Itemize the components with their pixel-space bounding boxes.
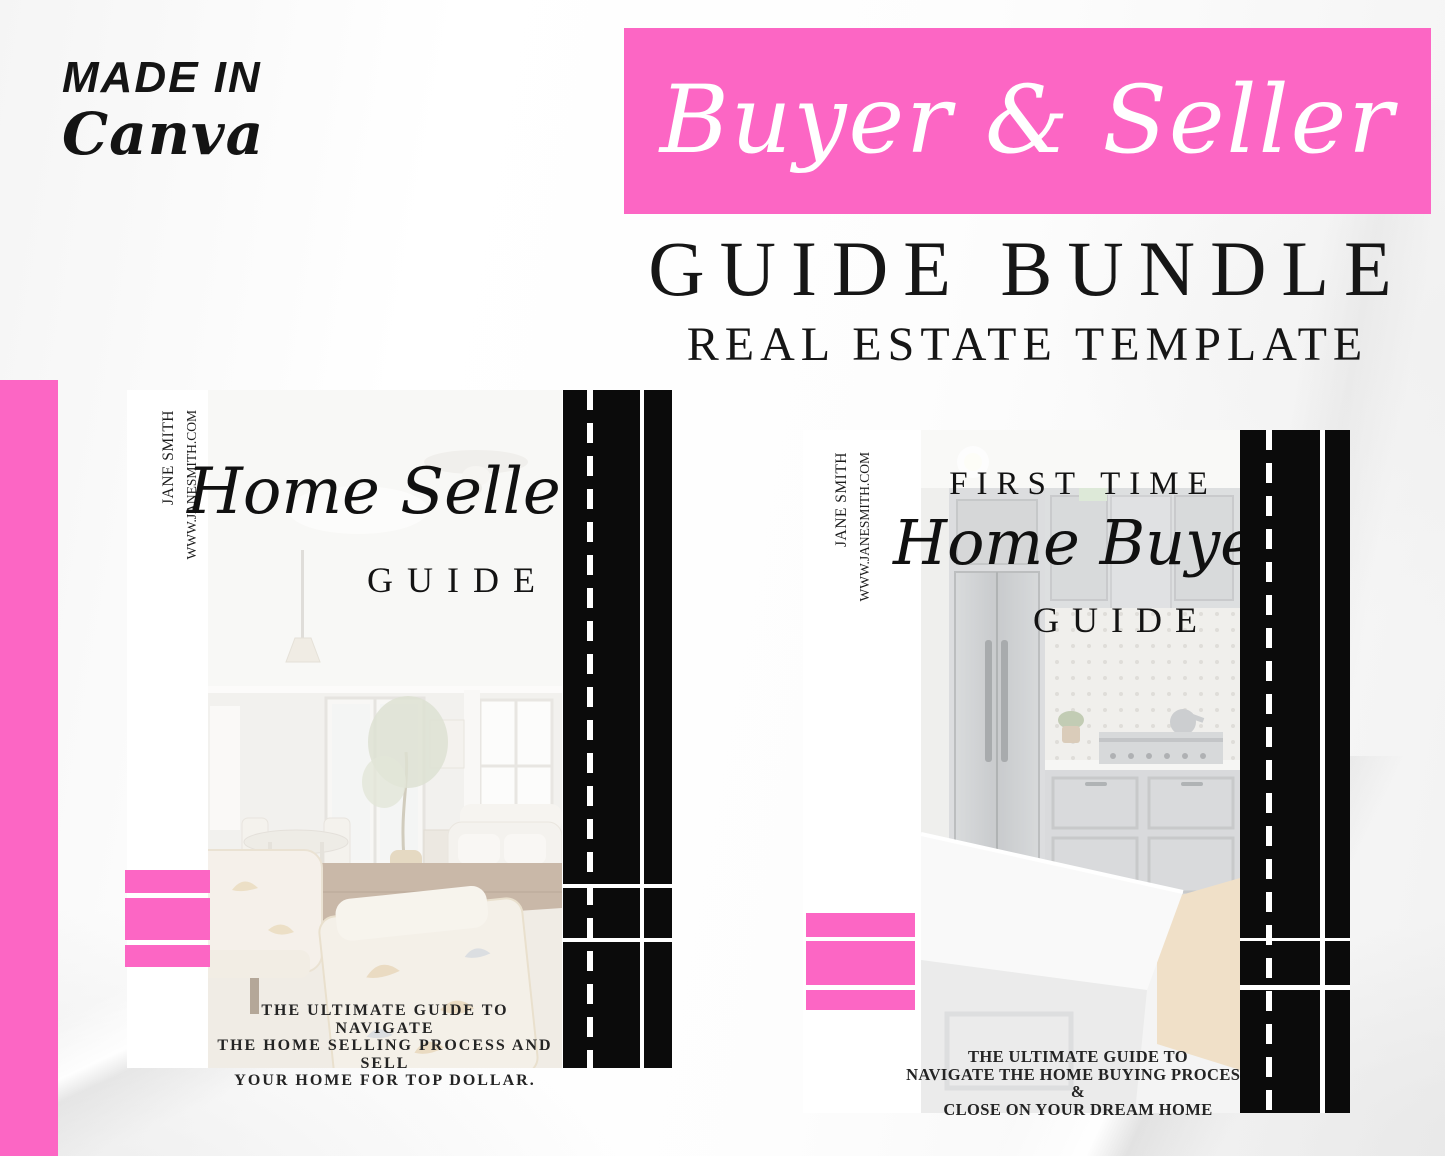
pink-stripe [806,913,915,937]
made-in-canva-badge: MADE IN Canva [62,55,264,163]
agent-name-vertical: JANE SMITH [831,452,853,547]
cover-tagline-line: YOUR HOME FOR TOP DOLLAR. [215,1072,555,1090]
page-subtitle: REAL ESTATE TEMPLATE [624,320,1431,370]
black-band-secondary [644,390,672,1068]
home-buyer-guide-cover: JANE SMITH WWW.JANESMITH.COM [803,430,1350,1113]
cover-tagline-line: THE HOME SELLING PROCESS AND SELL [215,1037,555,1072]
cover-tagline-line: NAVIGATE THE HOME BUYING PROCESS & [903,1066,1253,1101]
banner-title: Buyer & Seller [660,74,1395,168]
cover-tagline-line: THE ULTIMATE GUIDE TO NAVIGATE [215,1002,555,1037]
cover-subtitle: GUIDE [1033,602,1208,638]
agent-website-vertical: WWW.JANESMITH.COM [856,452,875,602]
left-pink-accent-bar [0,380,58,1156]
cover-eyebrow: FIRST TIME [923,468,1243,501]
cover-title: Home Seller [187,460,587,524]
pink-stripe [806,990,915,1010]
white-cross-line [1240,938,1350,941]
pink-stripe [125,945,210,967]
cover-tagline-line: CLOSE ON YOUR DREAM HOME [903,1101,1253,1119]
pink-stripe [125,870,210,893]
black-band-primary [1240,430,1320,1113]
black-band-secondary [1325,430,1350,1113]
black-band-primary [563,390,640,1068]
white-cross-line [563,938,672,942]
cover-title: Home Buyer [893,512,1253,574]
dashed-stitch-line [587,390,593,1068]
pink-stripe [125,898,210,940]
white-cross-line [1240,985,1350,990]
canva-template-listing-image: MADE IN Canva Buyer & Seller GUIDE BUNDL… [0,0,1445,1156]
cover-tagline: THE ULTIMATE GUIDE TO NAVIGATE THE HOME … [215,1002,555,1090]
page-title: GUIDE BUNDLE [624,228,1431,310]
agent-name-vertical: JANE SMITH [158,410,180,505]
dashed-stitch-line [1266,430,1272,1113]
pink-title-banner: Buyer & Seller [624,28,1431,214]
home-seller-guide-cover: JANE SMITH WWW.JANESMITH.COM [127,390,672,1068]
pink-stripe [806,941,915,985]
made-in-text: MADE IN [62,55,264,101]
cover-subtitle: GUIDE [367,562,547,598]
cover-tagline-line: THE ULTIMATE GUIDE TO [903,1048,1253,1066]
canva-wordmark: Canva [62,105,264,163]
cover-tagline: THE ULTIMATE GUIDE TO NAVIGATE THE HOME … [903,1048,1253,1118]
white-cross-line [563,884,672,888]
